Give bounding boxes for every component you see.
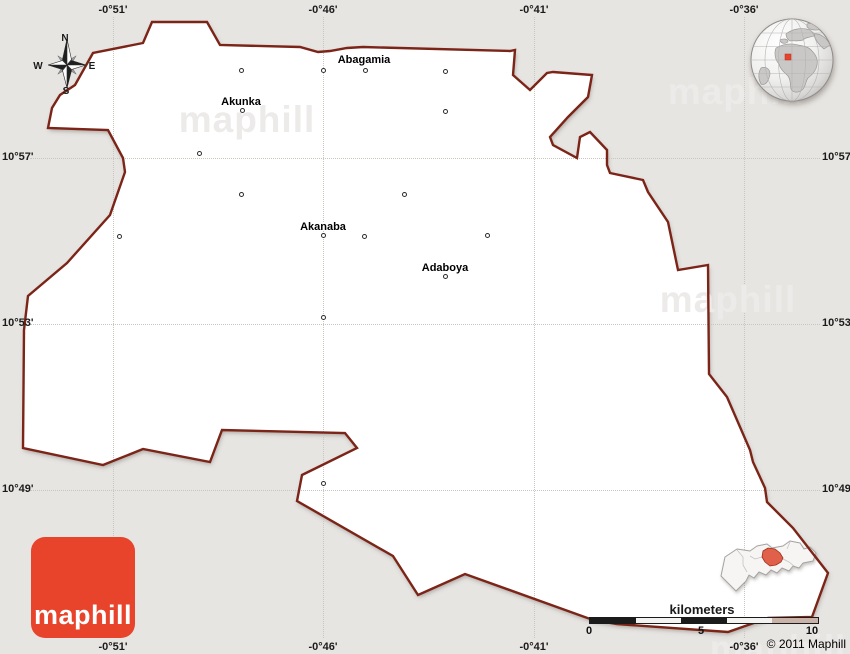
meridian-label-top: -0°51' (78, 4, 148, 16)
meridian-label-bottom: -0°46' (288, 641, 358, 653)
parallel-label-right: 10°57' (822, 151, 850, 163)
compass-star (48, 39, 86, 88)
copyright-notice: © 2011 Maphill (767, 637, 846, 651)
place-label: Akunka (221, 96, 261, 108)
scale-tick-label: 0 (586, 625, 592, 637)
scale-segment (727, 618, 772, 623)
globe-marker-icon (785, 54, 791, 60)
compass-west-label: W (33, 61, 43, 72)
town-marker (443, 69, 448, 74)
parallel-label-left: 10°53' (2, 317, 30, 329)
compass-east-label: E (89, 61, 96, 72)
scale-segment (590, 618, 636, 623)
place-label: Abagamia (338, 54, 391, 66)
town-marker (197, 151, 202, 156)
town-marker (443, 109, 448, 114)
scale-tick-label: 10 (806, 625, 818, 637)
maphill-logo: maphill (31, 537, 135, 638)
globe-locator (750, 18, 834, 102)
scale-tick-label: 5 (698, 625, 704, 637)
parallel-label-right: 10°53' (822, 317, 850, 329)
town-marker (321, 481, 326, 486)
town-marker (402, 192, 407, 197)
meridian-label-top: -0°46' (288, 4, 358, 16)
scale-unit-label: kilometers (669, 602, 734, 617)
parallel-label-left: 10°49' (2, 483, 30, 495)
place-label: Akanaba (300, 221, 346, 233)
town-marker (239, 192, 244, 197)
place-label: Adaboya (422, 262, 468, 274)
town-marker (321, 233, 326, 238)
town-marker (363, 68, 368, 73)
map-canvas: maphill maphill maphill maphill (0, 0, 850, 654)
parallel-label-right: 10°49' (822, 483, 850, 495)
town-marker (485, 233, 490, 238)
scale-bar (589, 617, 819, 624)
town-marker (239, 68, 244, 73)
town-marker (321, 315, 326, 320)
town-marker (362, 234, 367, 239)
scale-segment (636, 618, 681, 623)
scale-segment (681, 618, 727, 623)
meridian-label-top: -0°41' (499, 4, 569, 16)
meridian-label-bottom: -0°51' (78, 641, 148, 653)
town-marker (240, 108, 245, 113)
compass-north-label: N (61, 33, 68, 44)
meridian-label-top: -0°36' (709, 4, 779, 16)
maphill-logo-text: maphill (31, 600, 135, 631)
town-marker (443, 274, 448, 279)
meridian-label-bottom: -0°41' (499, 641, 569, 653)
scale-segment (772, 618, 818, 623)
region-boundary (23, 22, 828, 632)
compass-rose: N E S W (26, 24, 106, 104)
compass-south-label: S (63, 86, 70, 97)
inset-overview-map (721, 541, 816, 591)
town-marker (321, 68, 326, 73)
town-marker (117, 234, 122, 239)
parallel-label-left: 10°57' (2, 151, 30, 163)
